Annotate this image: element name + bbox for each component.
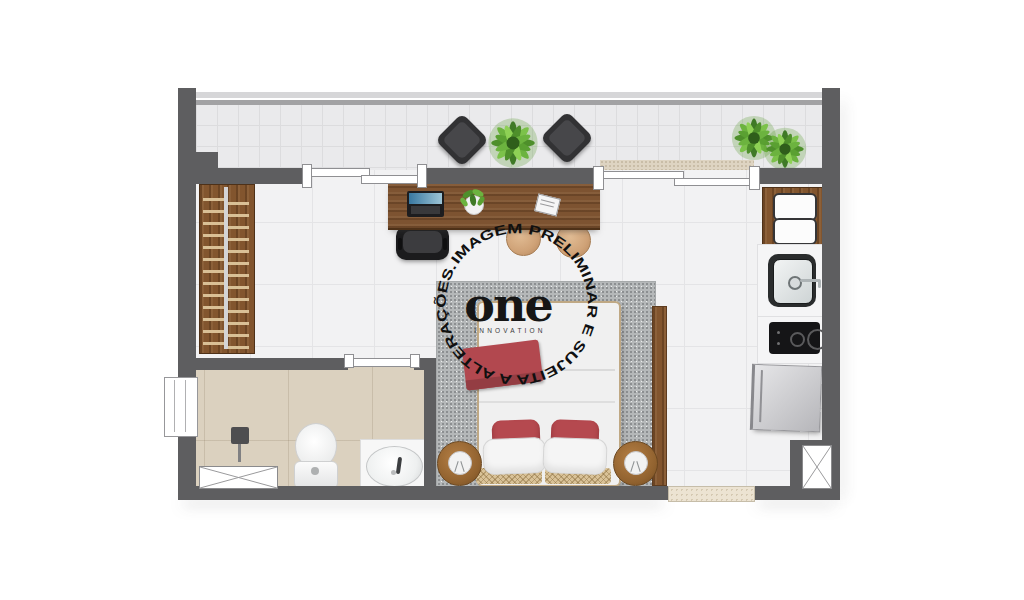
wall-divider-center — [419, 168, 600, 184]
refrigerator — [750, 364, 822, 432]
shower-drain-box — [199, 466, 278, 489]
bedside-lamp-right — [624, 451, 648, 475]
wall-bathroom-right — [424, 358, 436, 488]
toilet — [294, 423, 336, 488]
window-jamb-left — [302, 164, 312, 188]
kitchen-faucet — [788, 276, 802, 290]
notebook — [534, 193, 561, 216]
nightstand-left — [437, 441, 482, 486]
laptop — [407, 191, 444, 217]
kitchen-cabinet-door-2 — [773, 218, 817, 245]
bathroom-window — [164, 377, 198, 437]
bathroom-door-jamb-left — [344, 354, 354, 368]
wall-divider-jamb — [196, 152, 218, 170]
office-chair — [396, 226, 449, 260]
white-pillow-left — [482, 437, 546, 475]
wall-divider-kitchen — [754, 168, 822, 184]
balcony-door-sill — [600, 160, 754, 170]
entry-threshold — [668, 486, 755, 502]
balcony-parapet-rail — [192, 92, 826, 105]
desk-plant — [456, 184, 490, 210]
wall-left — [178, 88, 196, 500]
kitchen-sink-counter — [757, 244, 824, 318]
kitchen-tall-cabinet — [762, 187, 824, 246]
wall-divider-left — [196, 168, 310, 184]
kitchen-cabinet-door-1 — [773, 193, 817, 221]
floor-plan-canvas: IMAGEM PRELIMINAR E SUJEITA A ALTERAÇÕES… — [0, 0, 1024, 600]
window-jamb-right — [417, 164, 427, 188]
hanger-bars-left — [203, 189, 224, 349]
shower-arm — [238, 444, 241, 462]
work-desk — [388, 182, 600, 230]
bathroom-sliding-door — [348, 357, 416, 368]
sliding-window — [306, 166, 423, 186]
balcony-sliding-door — [598, 170, 756, 186]
hanger-bars-right — [228, 193, 249, 349]
bedside-lamp-left — [448, 451, 472, 475]
shower-head — [231, 427, 249, 444]
balcony-plant-right-2 — [760, 124, 810, 174]
balcony-plant-center — [484, 114, 542, 172]
wardrobe-with-hangers — [199, 184, 255, 354]
bathroom-sink — [366, 446, 423, 487]
wall-bathroom-top — [196, 358, 348, 370]
white-pillow-right — [542, 437, 607, 475]
cooktop-counter — [757, 316, 824, 364]
balcony-door-jamb-right — [749, 166, 760, 190]
bathroom-vanity — [360, 439, 428, 490]
nightstand-right — [613, 441, 658, 486]
wall-right — [822, 88, 840, 500]
service-shaft — [802, 445, 832, 489]
bathroom-door-jamb-right — [410, 354, 420, 368]
balcony-door-jamb-left — [593, 166, 604, 190]
cooktop — [769, 322, 820, 354]
